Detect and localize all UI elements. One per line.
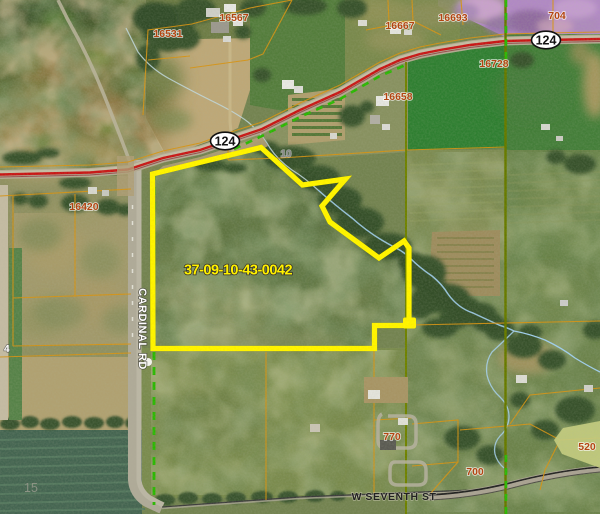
svg-text:16728: 16728 bbox=[479, 58, 508, 70]
svg-text:16567: 16567 bbox=[219, 12, 248, 24]
svg-text:CARDINAL RD: CARDINAL RD bbox=[136, 288, 148, 370]
svg-text:704: 704 bbox=[548, 10, 566, 22]
svg-text:16420: 16420 bbox=[69, 201, 98, 213]
svg-text:16667: 16667 bbox=[385, 20, 414, 32]
svg-text:16658: 16658 bbox=[383, 91, 412, 103]
svg-text:15: 15 bbox=[24, 481, 38, 495]
svg-text:W SEVENTH ST: W SEVENTH ST bbox=[352, 491, 437, 503]
svg-text:124: 124 bbox=[215, 135, 236, 149]
svg-text:37-09-10-43-0042: 37-09-10-43-0042 bbox=[184, 263, 293, 279]
svg-text:700: 700 bbox=[466, 466, 484, 478]
svg-text:124: 124 bbox=[536, 34, 557, 48]
svg-text:770: 770 bbox=[383, 431, 401, 443]
svg-text:16531: 16531 bbox=[153, 28, 182, 40]
svg-text:16693: 16693 bbox=[438, 12, 467, 24]
svg-text:520: 520 bbox=[578, 441, 596, 453]
svg-text:4: 4 bbox=[4, 344, 10, 355]
svg-text:10: 10 bbox=[280, 149, 292, 160]
